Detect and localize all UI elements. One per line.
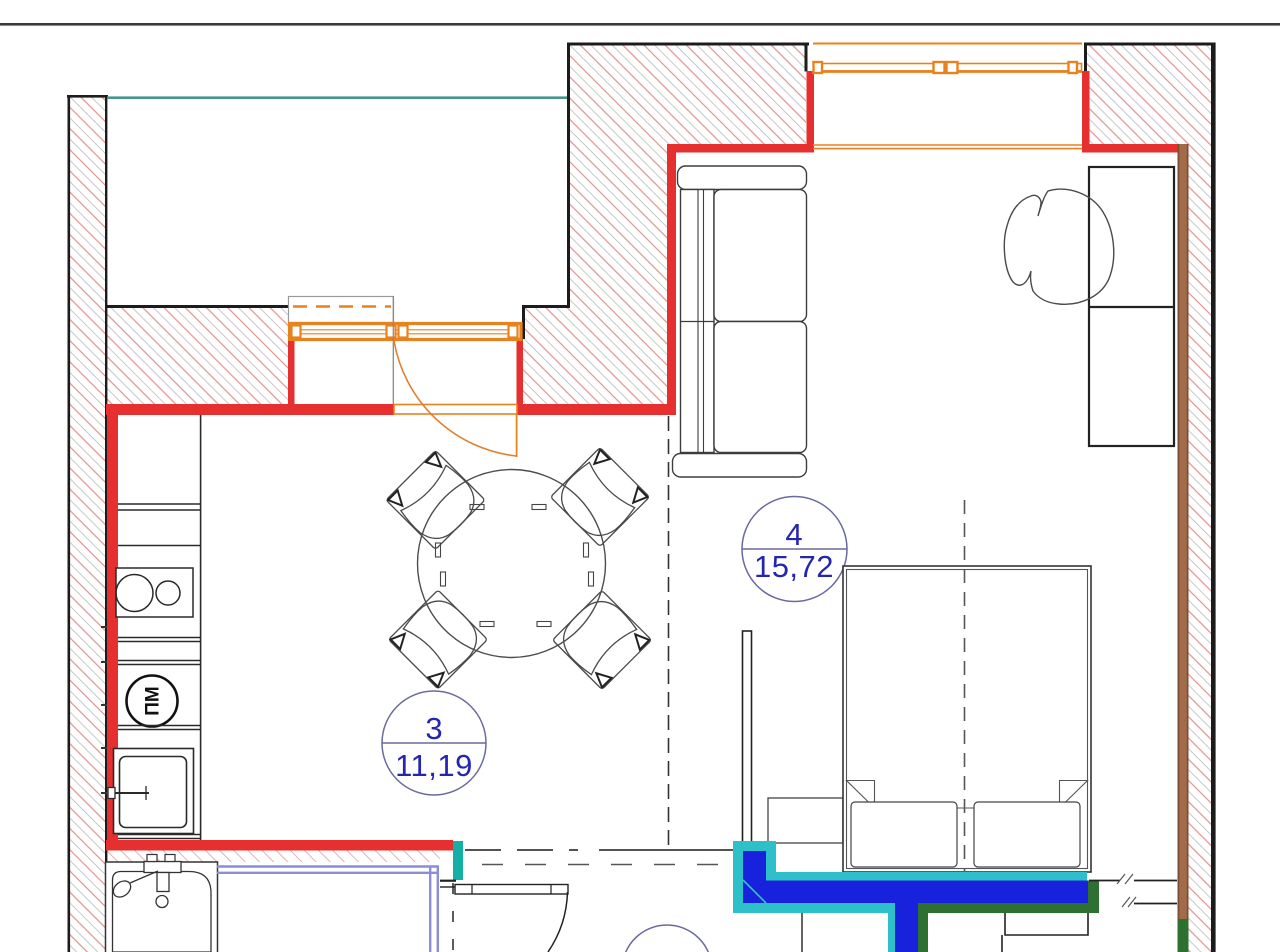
svg-text:15,72: 15,72 [754, 549, 834, 584]
svg-text:4: 4 [785, 517, 802, 552]
svg-text:11,19: 11,19 [395, 748, 473, 783]
svg-text:3: 3 [425, 711, 442, 746]
svg-text:ПМ: ПМ [143, 686, 164, 715]
